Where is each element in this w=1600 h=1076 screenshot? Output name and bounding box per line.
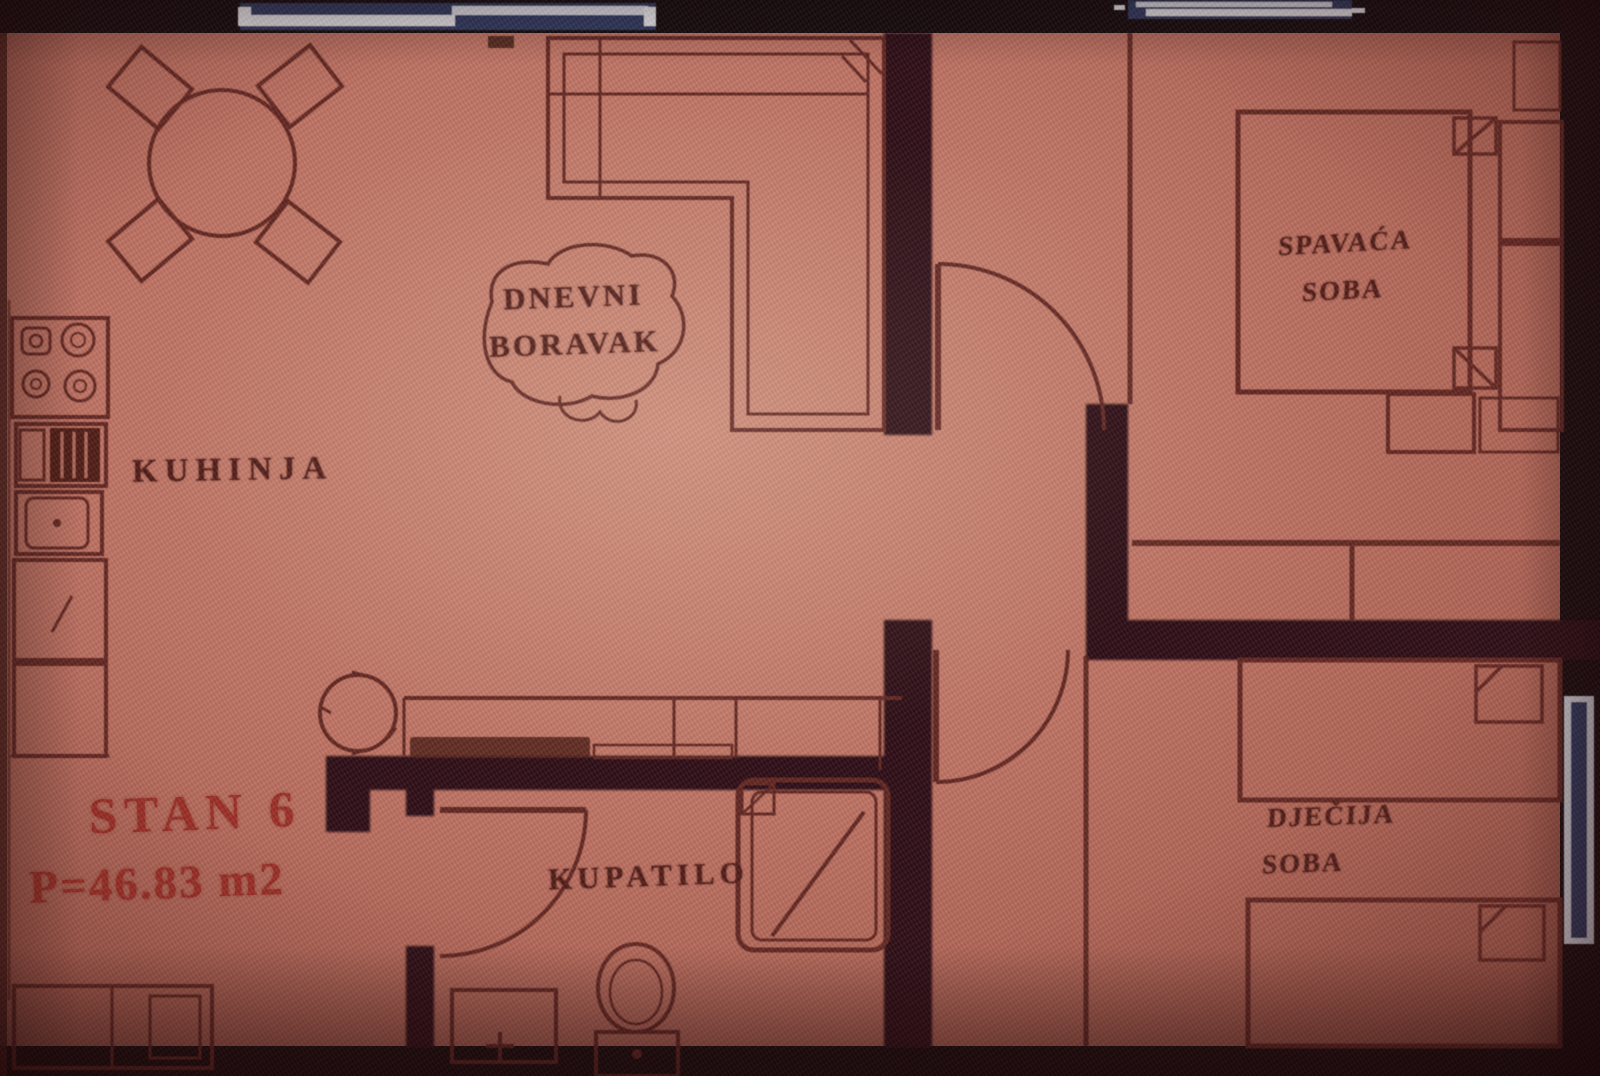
wall-tick — [488, 36, 514, 48]
wall-stub-left — [326, 790, 370, 832]
wall-bathroom-top — [326, 756, 888, 790]
floor-plan-photo: KUHINJA DNEVNI BORAVAK KUPATILO SPAVAĆA … — [0, 0, 1600, 1076]
room-label-children-line2: SOBA — [1182, 837, 1424, 891]
room-label-bedroom: SPAVAĆA SOBA — [1244, 215, 1445, 320]
floor — [0, 0, 1600, 1076]
room-label-living-line2: BORAVAK — [462, 317, 687, 371]
desk-object — [410, 737, 590, 758]
floor-plan-svg — [0, 0, 1600, 1076]
wall-bathroom-jamb-bottom — [406, 946, 434, 1048]
room-label-children-room: DJEČIJA SOBA — [1208, 790, 1453, 890]
room-label-bathroom: KUPATILO — [547, 855, 749, 898]
wall-living-hall — [884, 33, 932, 435]
apartment-title: STAN 6 — [88, 781, 302, 846]
wall-bathroom-jamb-top — [406, 790, 434, 816]
wall-bathroom-hall — [884, 620, 932, 1048]
room-label-kitchen: KUHINJA — [132, 450, 334, 491]
left-wall-edge — [0, 33, 7, 1076]
room-label-living-line1: DNEVNI — [460, 270, 685, 324]
bottom-wall-band — [0, 1046, 1600, 1076]
wall-bedroom-children — [1086, 620, 1600, 660]
window-right-icon — [1564, 696, 1594, 944]
apartment-title-block: STAN 6 P=46.83 m2 — [26, 781, 305, 915]
wall-hall-bedroom — [1086, 404, 1128, 654]
apartment-area: P=46.83 m2 — [28, 851, 304, 915]
window-top-right-icon — [1114, 0, 1365, 19]
room-label-living-room: DNEVNI BORAVAK — [460, 270, 687, 371]
window-top-left-icon — [238, 3, 656, 30]
